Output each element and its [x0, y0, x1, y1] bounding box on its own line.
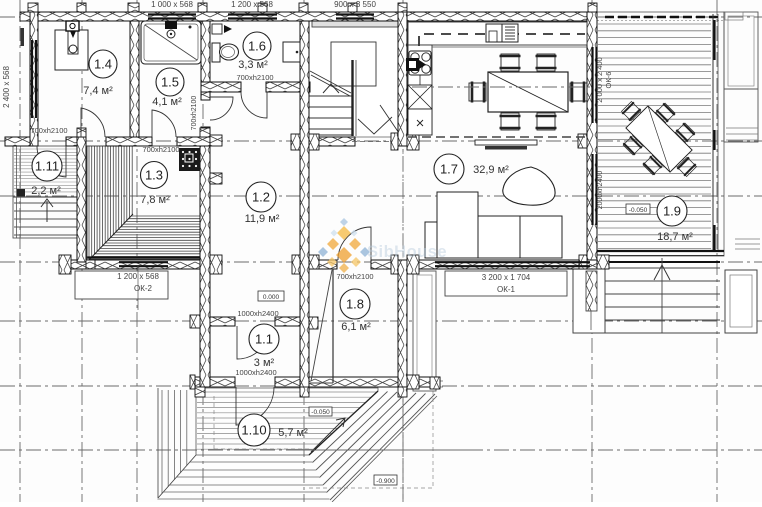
svg-text:1.10: 1.10 — [241, 423, 266, 438]
svg-text:-0.900: -0.900 — [376, 478, 395, 485]
svg-text:700xh2100: 700xh2100 — [142, 145, 179, 154]
svg-text:-0.050: -0.050 — [629, 207, 648, 214]
svg-text:1.2: 1.2 — [252, 190, 270, 205]
svg-text:ОК-6: ОК-6 — [604, 72, 613, 89]
svg-text:0.000: 0.000 — [263, 294, 280, 301]
svg-text:700xh2100: 700xh2100 — [30, 126, 67, 135]
svg-text:3,3 м²: 3,3 м² — [238, 59, 268, 71]
svg-text:1.1: 1.1 — [255, 332, 273, 347]
svg-text:18,7 м²: 18,7 м² — [657, 231, 693, 243]
svg-text:700xh2100: 700xh2100 — [336, 272, 373, 281]
svg-text:2 400 x 568: 2 400 x 568 — [2, 66, 11, 108]
svg-text:1.11: 1.11 — [35, 159, 59, 174]
svg-text:7,4 м²: 7,4 м² — [83, 85, 113, 97]
svg-text:1.8: 1.8 — [346, 297, 364, 312]
svg-text:900 x 3 550: 900 x 3 550 — [334, 0, 376, 9]
svg-text:11,9 м²: 11,9 м² — [245, 213, 280, 225]
svg-text:1 000 x 568: 1 000 x 568 — [151, 0, 193, 9]
svg-text:SibHouse: SibHouse — [367, 243, 447, 261]
svg-text:5,7 м²: 5,7 м² — [278, 427, 308, 439]
svg-text:-0.050: -0.050 — [311, 409, 330, 416]
svg-text:2 000 x 2 400: 2 000 x 2 400 — [595, 57, 604, 102]
svg-text:700xh2100: 700xh2100 — [191, 96, 198, 131]
svg-text:1.5: 1.5 — [161, 75, 179, 90]
svg-text:1 200 x 568: 1 200 x 568 — [231, 0, 273, 9]
svg-text:2000xh2400: 2000xh2400 — [597, 171, 604, 210]
svg-text:ОК-2: ОК-2 — [134, 284, 153, 293]
svg-text:3 200 x 1 704: 3 200 x 1 704 — [482, 273, 531, 282]
svg-text:1.3: 1.3 — [145, 168, 163, 183]
svg-text:4,1 м²: 4,1 м² — [152, 96, 182, 108]
svg-text:1000xh2400: 1000xh2400 — [237, 309, 278, 318]
svg-text:ОК-1: ОК-1 — [497, 285, 516, 294]
svg-text:1.4: 1.4 — [94, 57, 112, 72]
svg-text:7,8 м²: 7,8 м² — [140, 194, 170, 206]
svg-text:1.9: 1.9 — [663, 204, 681, 219]
svg-text:1.7: 1.7 — [440, 162, 458, 177]
svg-text:32,9 м²: 32,9 м² — [473, 164, 509, 176]
svg-text:700xh2100: 700xh2100 — [236, 73, 273, 82]
svg-text:6,1 м²: 6,1 м² — [341, 321, 371, 333]
svg-text:2,2 м²: 2,2 м² — [31, 185, 61, 197]
svg-text:1.6: 1.6 — [248, 39, 266, 54]
svg-text:3 м²: 3 м² — [254, 357, 275, 369]
svg-text:1000xh2400: 1000xh2400 — [235, 368, 276, 377]
